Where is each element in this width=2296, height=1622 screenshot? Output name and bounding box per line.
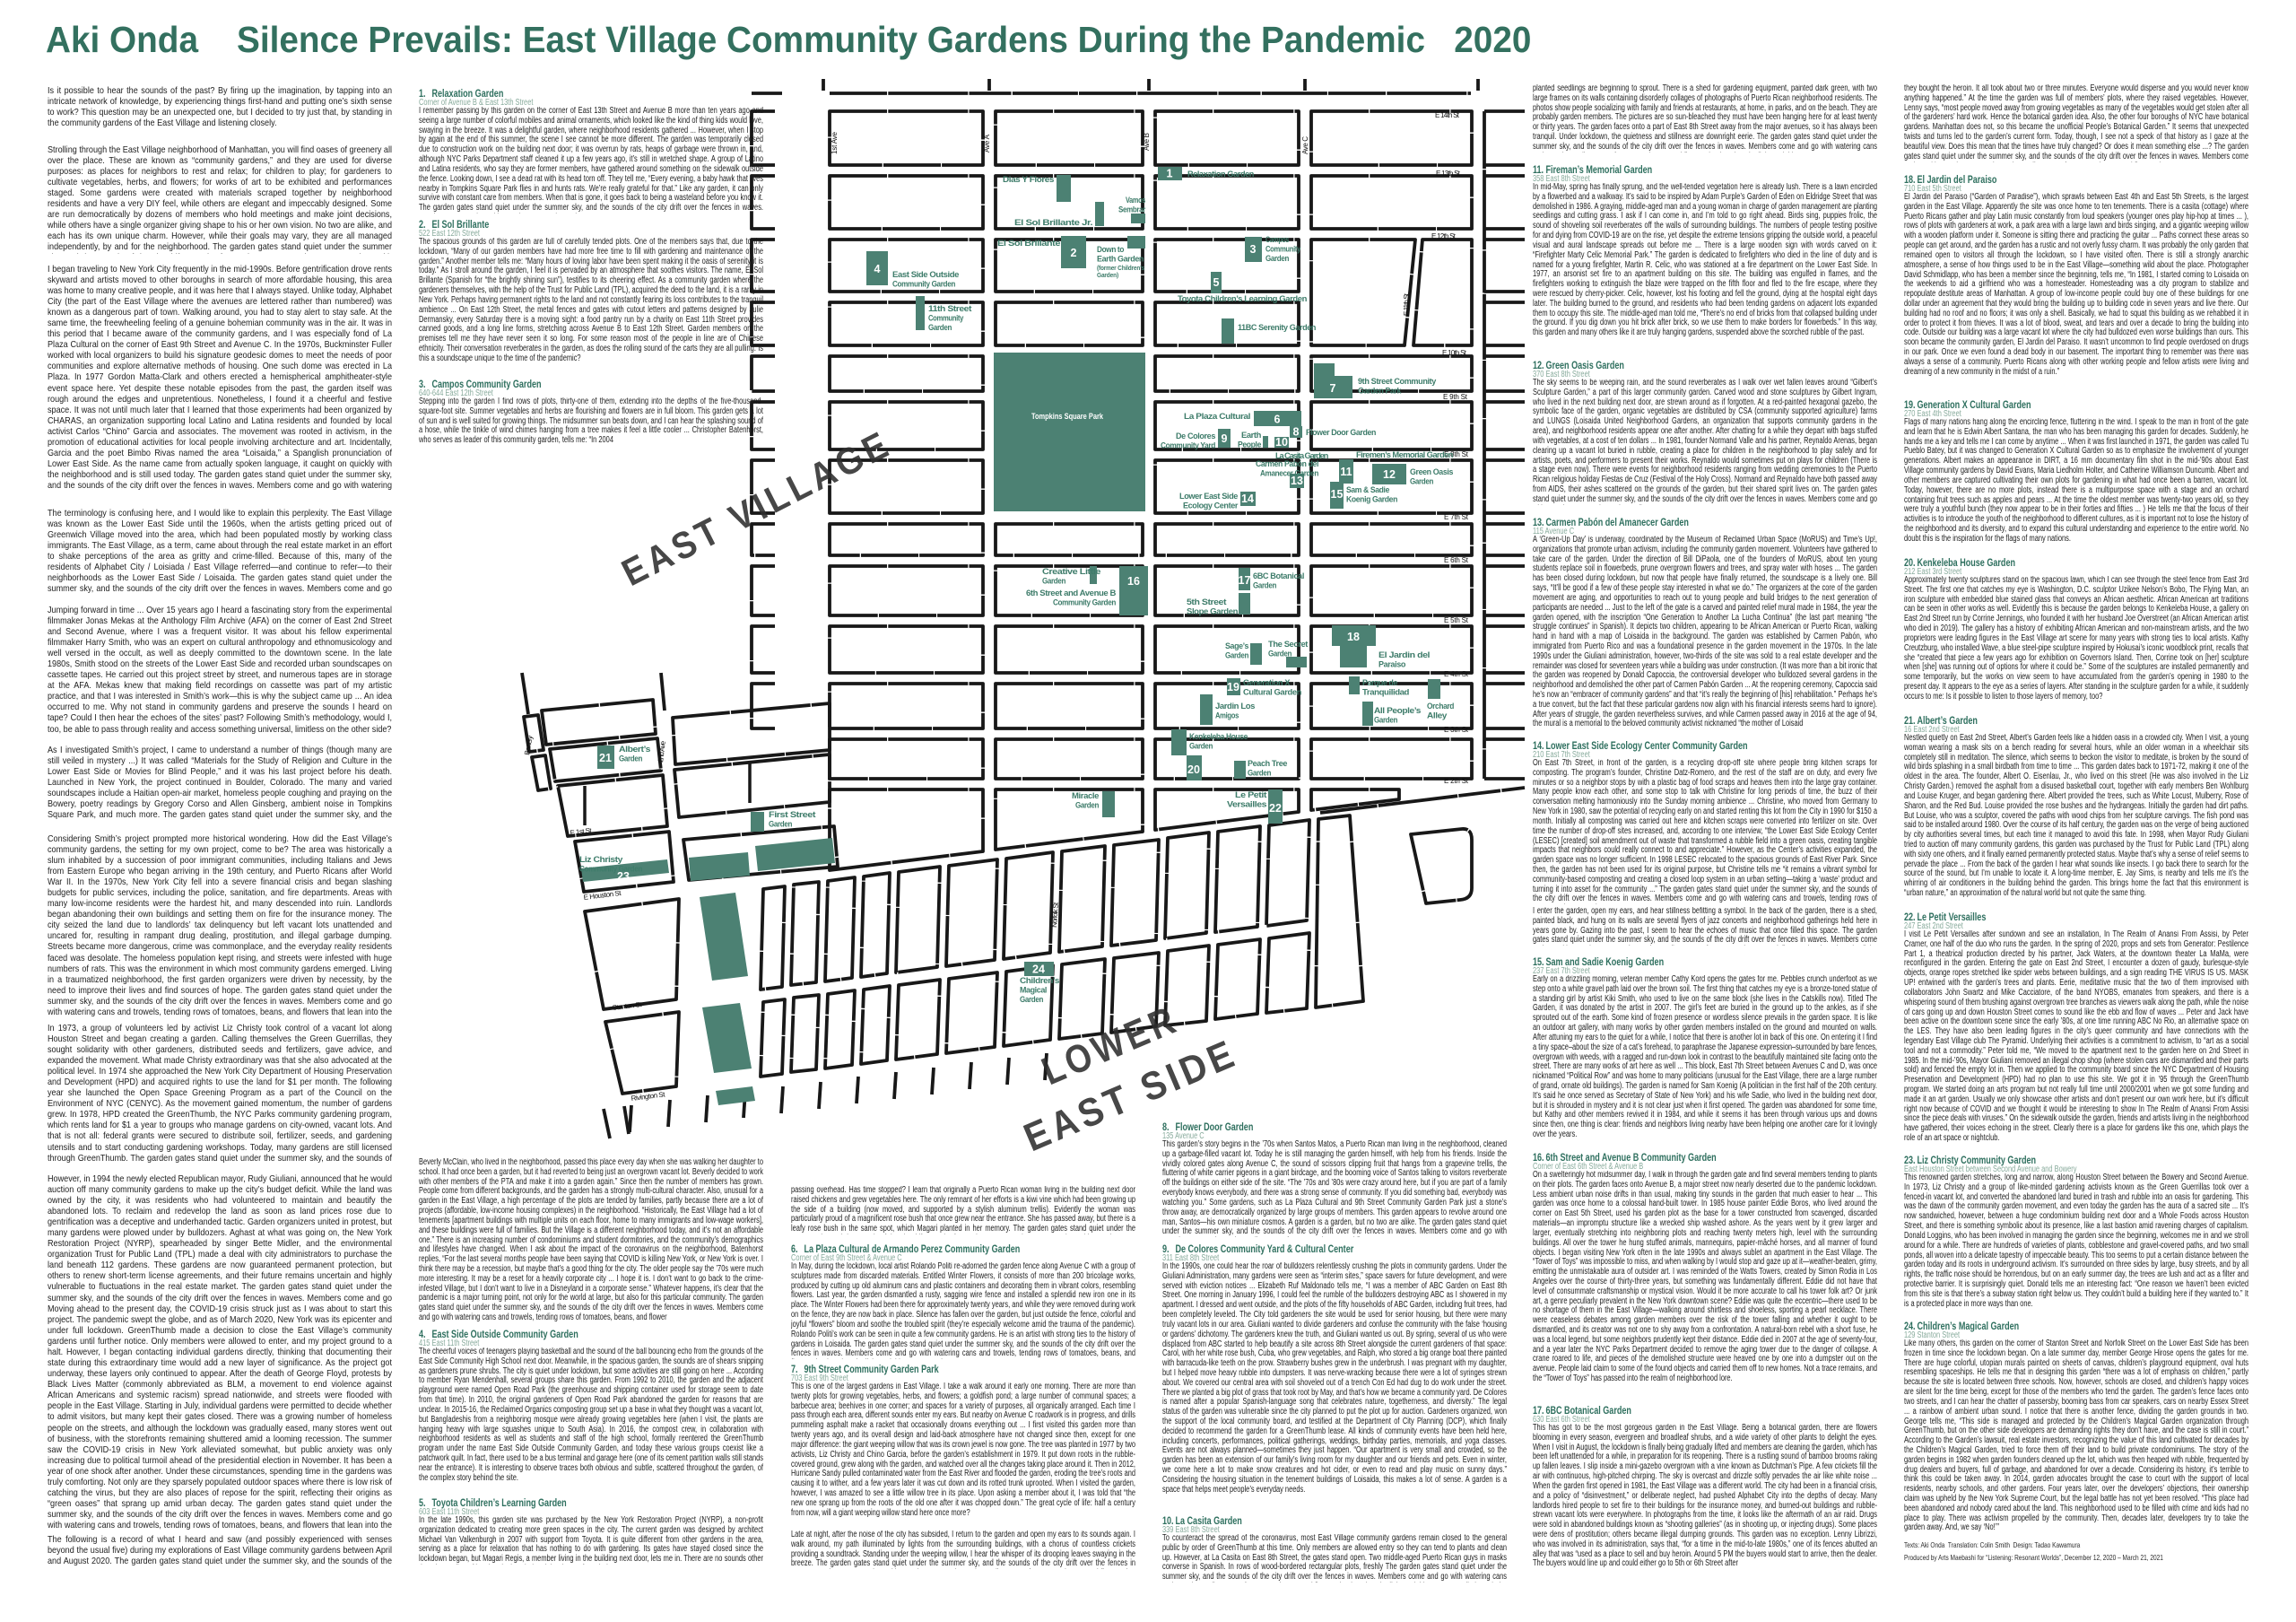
svg-text:CamposCommunityGarden: CamposCommunityGarden — [1265, 234, 1301, 263]
svg-text:21: 21 — [599, 752, 612, 764]
svg-text:20: 20 — [1187, 763, 1200, 776]
svg-text:Sage’sGarden: Sage’sGarden — [1225, 641, 1249, 660]
svg-text:11: 11 — [1340, 466, 1352, 478]
svg-text:18: 18 — [1347, 631, 1360, 643]
svg-text:Parque deTranquilidad: Parque deTranquilidad — [1362, 677, 1410, 697]
svg-text:6th Street and Avenue BCommuni: 6th Street and Avenue BCommunity Garden — [1026, 588, 1117, 607]
svg-text:El Jardin delParaiso: El Jardin delParaiso — [1378, 650, 1430, 669]
svg-text:7: 7 — [1330, 382, 1336, 395]
svg-text:16: 16 — [1127, 575, 1140, 588]
svg-text:8: 8 — [1293, 426, 1300, 439]
svg-text:MiracleGarden: MiracleGarden — [1072, 790, 1100, 810]
svg-text:Le PetitVersailles: Le PetitVersailles — [1227, 789, 1266, 809]
svg-text:14: 14 — [1241, 493, 1254, 505]
svg-text:11BC Serenity Garden: 11BC Serenity Garden — [1238, 322, 1317, 332]
svg-text:19: 19 — [1227, 681, 1239, 693]
svg-text:Firemen’s Memorial Garden: Firemen’s Memorial Garden — [1356, 449, 1454, 459]
svg-text:Peach TreeGarden: Peach TreeGarden — [1248, 758, 1287, 778]
svg-text:11th StreetCommunityGarden: 11th StreetCommunityGarden — [928, 303, 971, 332]
svg-text:East Side OutsideCommunity Gar: East Side OutsideCommunity Garden — [892, 269, 959, 289]
svg-text:6BC BotanicalGarden: 6BC BotanicalGarden — [1253, 571, 1304, 590]
svg-text:2: 2 — [1071, 247, 1077, 259]
svg-text:El Sol Brillante Jr.: El Sol Brillante Jr. — [1014, 217, 1092, 227]
svg-text:17: 17 — [1239, 574, 1251, 587]
svg-text:(former Children’sGarden): (former Children’sGarden) — [1097, 264, 1144, 279]
svg-text:Dias Y Flores: Dias Y Flores — [1003, 174, 1054, 184]
svg-text:3: 3 — [1250, 243, 1257, 256]
svg-text:Carmen Pabón delAmanecer Garde: Carmen Pabón delAmanecer Garden — [1256, 458, 1319, 478]
svg-text:El Sol Brillante: El Sol Brillante — [997, 238, 1060, 248]
svg-text:Relaxation Garden: Relaxation Garden — [1187, 169, 1255, 179]
svg-text:12: 12 — [1383, 468, 1396, 481]
svg-text:5: 5 — [1213, 276, 1220, 289]
svg-text:De ColoresCommunity Yard: De ColoresCommunity Yard — [1161, 431, 1216, 450]
svg-text:1: 1 — [1167, 168, 1173, 180]
svg-text:VamosSembrar: VamosSembrar — [1118, 195, 1146, 214]
svg-text:Lower East SideEcology Center: Lower East SideEcology Center — [1179, 491, 1239, 510]
svg-text:The SecretGarden: The SecretGarden — [1268, 639, 1308, 658]
svg-text:Sam & SadieKoenig Garden: Sam & SadieKoenig Garden — [1346, 484, 1398, 504]
svg-text:Children’sMagicalGarden: Children’sMagicalGarden — [1020, 975, 1059, 1004]
svg-text:First StreetGarden: First StreetGarden — [769, 809, 815, 829]
svg-text:All People’sGarden: All People’sGarden — [1374, 705, 1421, 725]
svg-text:Jardin LosAmigos: Jardin LosAmigos — [1215, 701, 1255, 720]
svg-text:Kenkeleba HouseGarden: Kenkeleba HouseGarden — [1189, 731, 1248, 751]
svg-text:22: 22 — [1269, 802, 1282, 815]
svg-text:Albert’sGarden: Albert’sGarden — [619, 744, 650, 763]
svg-text:Toyota Children’s Learning Gar: Toyota Children’s Learning Garden — [1178, 293, 1308, 303]
svg-text:24: 24 — [1032, 964, 1045, 976]
svg-text:Liz ChristyCommunity Garden: Liz ChristyCommunity Garden — [579, 854, 643, 874]
svg-text:6: 6 — [1274, 414, 1281, 426]
svg-text:10: 10 — [1275, 436, 1288, 449]
svg-text:La Plaza Cultural: La Plaza Cultural — [1184, 411, 1250, 421]
svg-text:4: 4 — [874, 263, 881, 275]
svg-text:9: 9 — [1222, 432, 1228, 445]
svg-text:5th StreetSlope Garden: 5th StreetSlope Garden — [1187, 597, 1239, 616]
svg-text:Flower Door Garden: Flower Door Garden — [1306, 427, 1377, 437]
svg-text:EarthPeople: EarthPeople — [1238, 430, 1262, 449]
svg-text:15: 15 — [1331, 488, 1344, 501]
svg-text:Green OasisGarden: Green OasisGarden — [1410, 467, 1453, 486]
svg-text:OrchardAlley: OrchardAlley — [1427, 701, 1455, 720]
svg-text:9th Street CommunityGarden Par: 9th Street CommunityGarden Park — [1358, 376, 1437, 396]
svg-text:Generation XCultural Garden: Generation XCultural Garden — [1243, 677, 1302, 697]
